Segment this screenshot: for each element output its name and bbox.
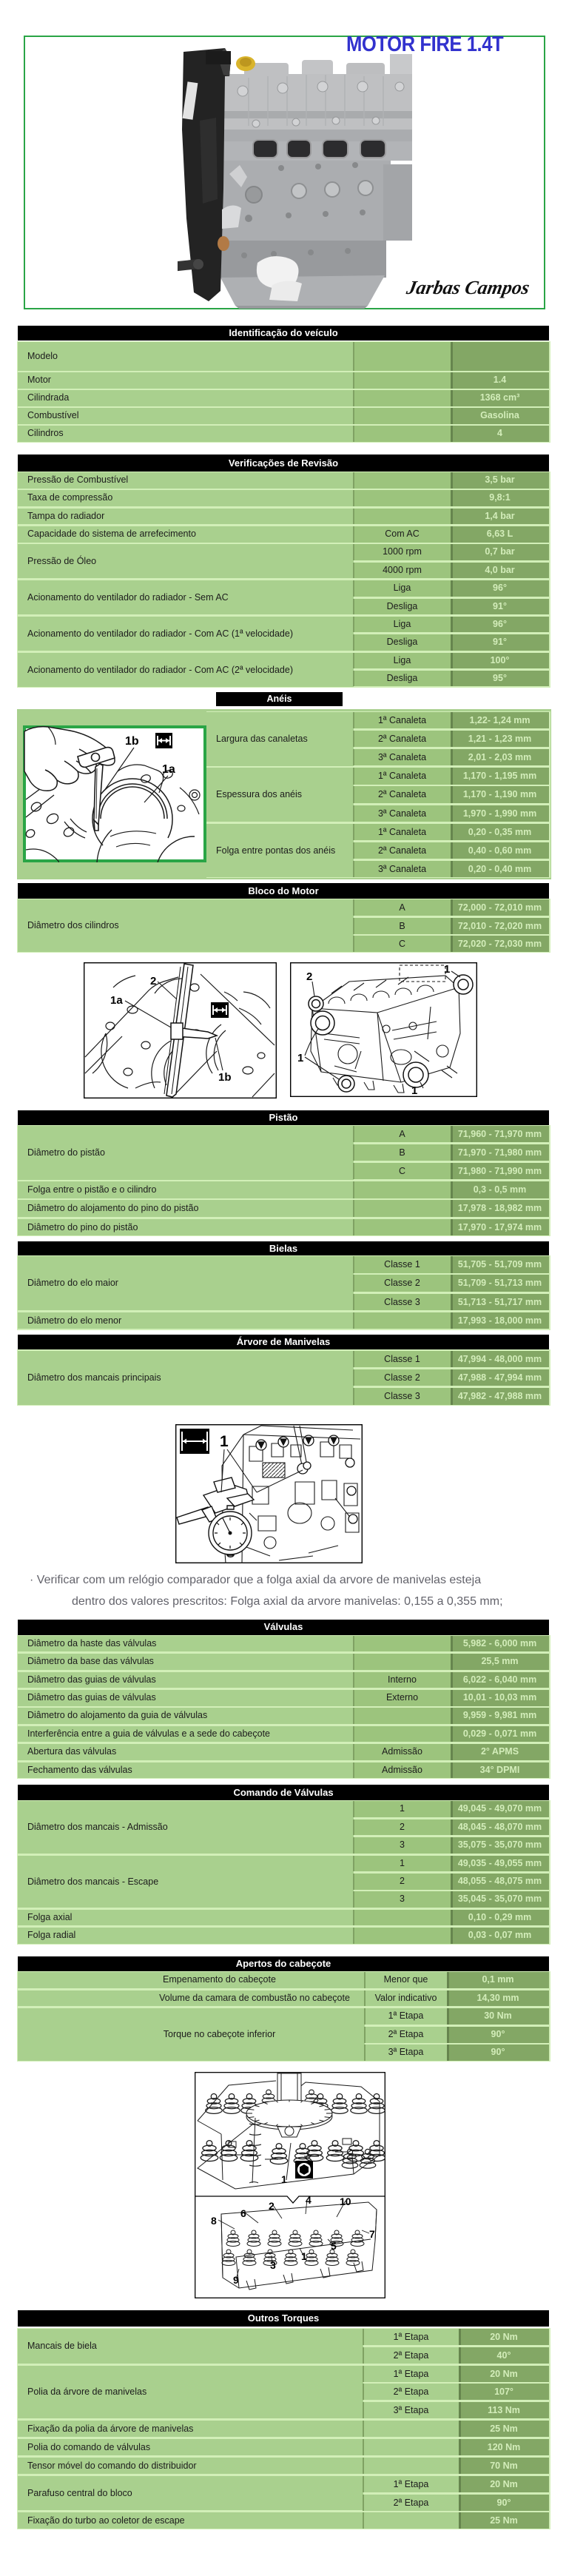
svg-text:3: 3 [270, 2259, 276, 2271]
svg-text:1b: 1b [125, 735, 139, 748]
svg-text:8: 8 [211, 2215, 217, 2227]
svg-text:1: 1 [220, 1433, 229, 1450]
svg-text:5: 5 [331, 2240, 337, 2252]
svg-text:1: 1 [444, 963, 450, 976]
svg-text:1: 1 [411, 1084, 417, 1097]
svg-text:1b: 1b [218, 1071, 232, 1084]
svg-text:9: 9 [233, 2274, 239, 2286]
svg-text:2: 2 [306, 970, 312, 983]
svg-text:1a: 1a [162, 763, 175, 776]
svg-text:2: 2 [150, 975, 156, 987]
svg-text:1: 1 [297, 1052, 303, 1064]
svg-text:1a: 1a [110, 994, 123, 1007]
svg-text:7: 7 [369, 2228, 375, 2240]
